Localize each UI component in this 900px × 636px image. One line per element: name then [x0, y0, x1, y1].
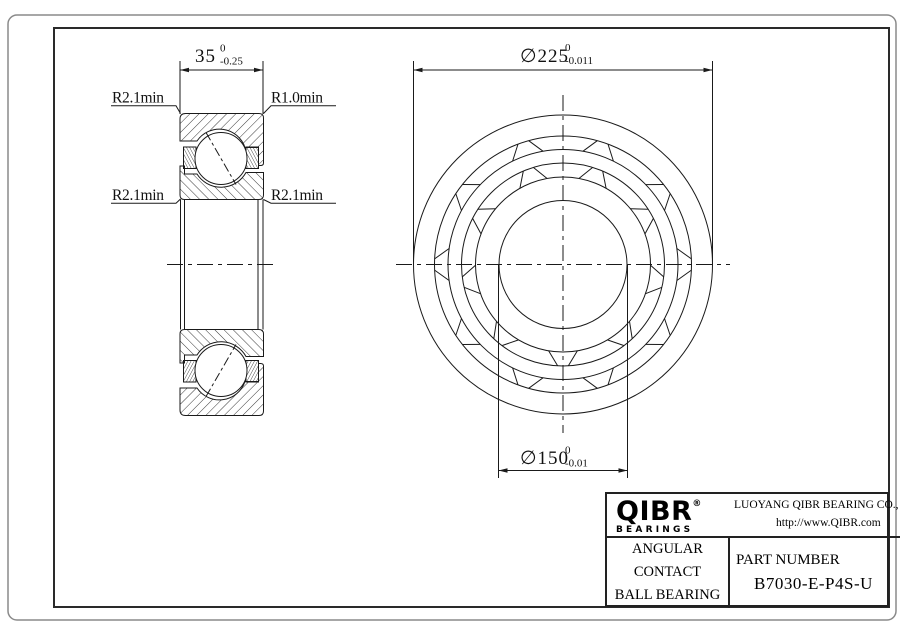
od-dim-tol-upper: 0: [565, 42, 571, 54]
arrowhead-left: [414, 68, 423, 73]
arrowhead-right: [254, 68, 263, 73]
drawing-sheet: 35 0 -0.25 R2.1min R1.0min R2.1min R2.1m…: [0, 0, 900, 636]
radius-label-top-right: R1.0min: [271, 90, 323, 107]
radius-label-mid-left: R2.1min: [112, 187, 164, 204]
title-block: QIBR® BEARINGS LUOYANG QIBR BEARING CO.,…: [605, 492, 889, 607]
part-number-cell: PART NUMBER B7030-E-P4S-U: [728, 538, 900, 608]
width-dim-tol-upper: 0: [220, 43, 226, 55]
bore-dim-tol-lower: -0.01: [565, 458, 588, 470]
logo-text: QIBR: [616, 496, 692, 527]
arrowhead-left: [180, 68, 189, 73]
title-block-header-row: QIBR® BEARINGS LUOYANG QIBR BEARING CO.,…: [607, 494, 900, 538]
front-view: [396, 61, 730, 478]
radius-label-top-left: R2.1min: [112, 90, 164, 107]
product-type-line2: BALL BEARING: [615, 584, 720, 607]
company-name: LUOYANG QIBR BEARING CO., LTD: [734, 497, 900, 515]
od-dim-value: ∅225: [520, 46, 569, 67]
title-block-bottom-row: ANGULAR CONTACT BALL BEARING PART NUMBER…: [607, 538, 900, 608]
product-type-line1: ANGULAR CONTACT: [607, 538, 728, 584]
bore-dim-tol-upper: 0: [565, 445, 571, 457]
company-logo: QIBR® BEARINGS: [607, 498, 734, 535]
leader-top-left: [111, 106, 181, 114]
section-view: [111, 61, 336, 416]
cage-section-right: [246, 147, 259, 169]
arrowhead-left: [499, 468, 508, 473]
company-website: http://www.QIBR.com: [734, 515, 900, 533]
od-dim-tol-lower: -0.011: [565, 55, 593, 67]
company-info: LUOYANG QIBR BEARING CO., LTD http://www…: [734, 497, 900, 533]
bore-dim-value: ∅150: [520, 448, 569, 469]
section-top-half: [180, 114, 264, 200]
arrowhead-right: [619, 468, 628, 473]
outer-ring-inner-circle: [435, 136, 692, 393]
arrowhead-right: [704, 68, 713, 73]
logo-subtext: BEARINGS: [616, 526, 734, 535]
product-type-cell: ANGULAR CONTACT BALL BEARING: [607, 538, 728, 608]
width-dimension: [180, 61, 263, 114]
width-dim-value: 35: [195, 46, 216, 67]
cage-section-right: [246, 361, 259, 383]
leader-top-right: [264, 106, 337, 114]
section-bottom-half: [180, 330, 264, 416]
part-number-value: B7030-E-P4S-U: [736, 571, 900, 597]
width-dim-tol-lower: -0.25: [220, 56, 243, 68]
cage-section-left: [184, 147, 197, 169]
cage-section-left: [184, 361, 197, 383]
radius-label-mid-right: R2.1min: [271, 187, 323, 204]
part-number-label: PART NUMBER: [736, 549, 900, 572]
registered-trademark-icon: ®: [692, 499, 701, 509]
